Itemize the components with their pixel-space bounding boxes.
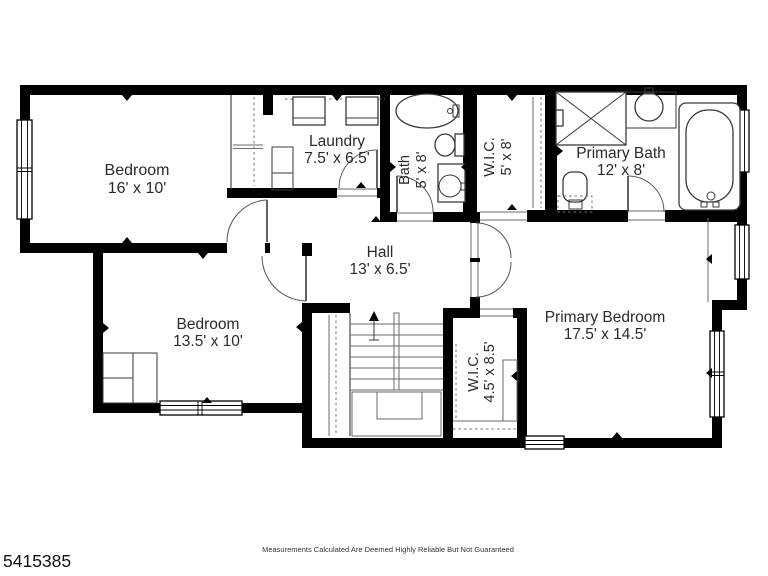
hall-dims: 13' x 6.5' [349, 261, 410, 278]
tick [706, 368, 712, 378]
bath-toilet-bowl [435, 134, 455, 156]
pbath-sink [635, 93, 663, 121]
stair-landing [352, 392, 441, 436]
dryer [346, 97, 378, 125]
stair-closet [329, 315, 336, 436]
bedroom2-closet [103, 353, 157, 403]
threshold-pbath [628, 211, 665, 220]
primary-bath-door-arc [628, 176, 664, 212]
staircase [329, 311, 443, 436]
primary-bath-door [628, 176, 664, 212]
laundry-label: Laundry [309, 133, 365, 150]
disclaimer-text: Measurements Calculated Are Deemed Highl… [262, 545, 514, 554]
bedroom2-door [262, 256, 306, 301]
bedroom1-window [17, 120, 32, 219]
wic-primary-shelf-box [503, 360, 517, 421]
primary-bedroom-bay-window [735, 225, 749, 279]
wall-bedroom2-corner [302, 243, 312, 256]
floorplan-drawing: Bedroom 16' x 10' Laundry 7.5' x 6.5' Ba… [0, 0, 768, 576]
primary-bath-label: Primary Bath [576, 145, 666, 162]
wic-primary-label: W.I.C. [466, 352, 482, 391]
stair-rail [394, 313, 399, 390]
corridor-door-lower [476, 262, 511, 297]
threshold-corridor-2 [471, 262, 478, 297]
tick [390, 162, 396, 172]
wall-stair-top [312, 303, 350, 313]
wall-door-post [265, 243, 270, 253]
tick [122, 95, 132, 101]
bath-label: Bath [397, 155, 413, 185]
laundry-cabinet-1 [272, 147, 293, 173]
tick [332, 95, 342, 101]
bedroom1-closet-shelf [233, 145, 263, 149]
listing-id: 5415385 [3, 551, 71, 571]
wall-wic-bottom-right [527, 210, 628, 222]
wic-upper-label: W.I.C. [482, 137, 498, 176]
wall-bedroom2-left [93, 243, 103, 413]
bedroom1-label: Bedroom [105, 162, 170, 179]
wall-bedroom2-right [302, 303, 312, 413]
primary-bedroom-dims: 17.5' x 14.5' [564, 326, 647, 343]
footer: 5415385 Measurements Calculated Are Deem… [3, 545, 514, 571]
bedroom2-door-arc [262, 256, 306, 301]
wall-pbath-bottom-right [665, 210, 747, 222]
wic-upper-dims: 5' x 8' [499, 138, 515, 175]
bedroom1-closet [231, 95, 263, 190]
tick [371, 216, 381, 222]
shower-head [556, 110, 563, 126]
bedroom2-label: Bedroom [177, 316, 240, 333]
stair-treads [350, 324, 443, 390]
threshold-bath [397, 213, 433, 221]
soaking-tub-basin [686, 110, 733, 202]
tick [356, 182, 366, 188]
tick [202, 397, 212, 403]
tick [706, 254, 712, 264]
washer [293, 97, 325, 125]
wall-wic2-left [443, 308, 453, 438]
threshold-wic-upper [480, 212, 527, 220]
tick [511, 371, 517, 381]
tick [507, 95, 517, 101]
laundry-dims: 7.5' x 6.5' [304, 150, 369, 167]
wall-bath-bottom-a [380, 212, 397, 222]
pbath-toilet-bowl [563, 172, 587, 202]
primary-bedroom-label: Primary Bedroom [545, 309, 666, 326]
tick [612, 432, 622, 438]
wall-bedroom1-bottom [20, 243, 227, 253]
bathtub [396, 94, 458, 128]
wall-wic2-right [517, 308, 527, 438]
bedroom2-dims: 13.5' x 10' [173, 333, 243, 350]
hall-label: Hall [367, 244, 394, 261]
bath-toilet-tank [455, 134, 464, 156]
wall-corridor-post [470, 258, 480, 262]
tick [122, 237, 132, 243]
threshold-wic-primary [480, 309, 513, 316]
wall-corridor-a [470, 212, 480, 223]
bath-dims: 5' x 8' [414, 151, 430, 188]
laundry-cabinet-2 [272, 173, 293, 190]
primary-bedroom-bottom-window [525, 436, 564, 449]
floorplan-page: Bedroom 16' x 10' Laundry 7.5' x 6.5' Ba… [0, 0, 768, 576]
tick [507, 204, 517, 210]
bedroom1-dims: 16' x 10' [108, 180, 167, 197]
wall-closet-laundry [263, 85, 273, 115]
bedroom2-window [160, 401, 242, 415]
wall-wic-pbath-divider [545, 95, 557, 210]
tick [296, 322, 302, 332]
threshold-laundry [337, 189, 377, 196]
corridor-door-upper-arc [476, 223, 511, 258]
tick [557, 146, 563, 156]
tick [198, 253, 208, 259]
wall-bath-left [380, 85, 390, 222]
fixtures [103, 88, 740, 436]
wic-upper-shelving [533, 97, 541, 208]
bedroom1-door-arc [227, 200, 267, 242]
stair-up-arrow [369, 311, 379, 340]
wic-primary-dims: 4.5' x 8.5' [482, 341, 498, 402]
threshold-corridor-1 [471, 223, 478, 258]
corridor-door-upper [476, 223, 511, 258]
bedroom1-door [227, 200, 267, 242]
tick [103, 323, 109, 333]
primary-bath-dims: 12' x 8' [597, 162, 645, 179]
wall-bottom [302, 438, 722, 448]
stair-landing-inner [377, 392, 422, 419]
primary-bedroom-side-window [710, 331, 724, 417]
corridor-door-lower-arc [476, 262, 511, 297]
